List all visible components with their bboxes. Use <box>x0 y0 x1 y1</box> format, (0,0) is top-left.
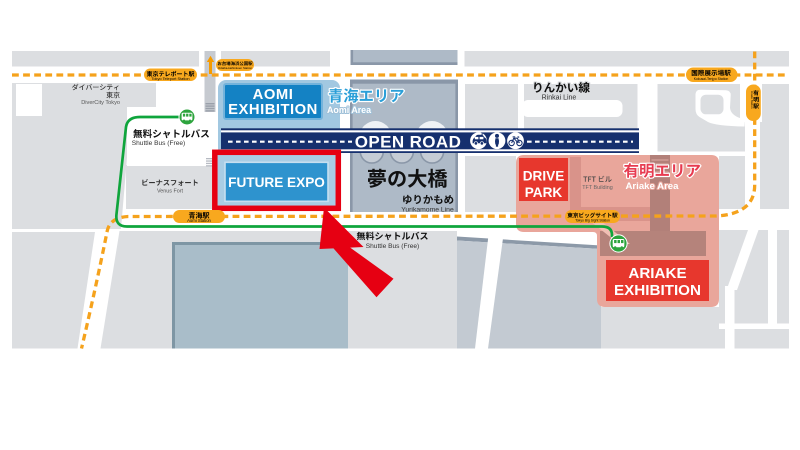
svg-text:FUTURE EXPO: FUTURE EXPO <box>228 175 325 190</box>
svg-text:Aomi Area: Aomi Area <box>327 105 371 115</box>
svg-text:Ariake Area: Ariake Area <box>626 181 680 192</box>
svg-text:Aomi Station: Aomi Station <box>187 218 211 223</box>
svg-text:Odaiba-kaihinkoen Station: Odaiba-kaihinkoen Station <box>218 66 252 70</box>
svg-text:Ariake Station: Ariake Station <box>750 91 754 109</box>
svg-text:Yurikamome Line: Yurikamome Line <box>401 207 454 214</box>
svg-text:TFT Building: TFT Building <box>582 185 612 191</box>
svg-text:DRIVE: DRIVE <box>523 169 565 184</box>
svg-text:OPEN ROAD: OPEN ROAD <box>355 132 462 151</box>
svg-text:Kokusai-Tenjyo Station: Kokusai-Tenjyo Station <box>694 77 729 81</box>
svg-text:Tokyo Teleport Station: Tokyo Teleport Station <box>151 76 189 81</box>
svg-text:PARK: PARK <box>525 185 563 200</box>
svg-text:ARIAKE: ARIAKE <box>628 265 686 282</box>
svg-text:DiverCity Tokyo: DiverCity Tokyo <box>81 100 120 106</box>
svg-text:Rinkai Line: Rinkai Line <box>542 94 577 101</box>
svg-text:Tokyo Big Sight Station: Tokyo Big Sight Station <box>575 219 610 223</box>
svg-text:AOMI: AOMI <box>253 87 294 103</box>
svg-text:Venus Fort: Venus Fort <box>157 188 184 194</box>
svg-text:Shuttle Bus (Free): Shuttle Bus (Free) <box>132 140 186 147</box>
svg-text:EXHIBITION: EXHIBITION <box>614 282 701 299</box>
svg-text:Shuttle Bus (Free): Shuttle Bus (Free) <box>366 243 420 250</box>
svg-text:EXHIBITION: EXHIBITION <box>228 102 318 118</box>
